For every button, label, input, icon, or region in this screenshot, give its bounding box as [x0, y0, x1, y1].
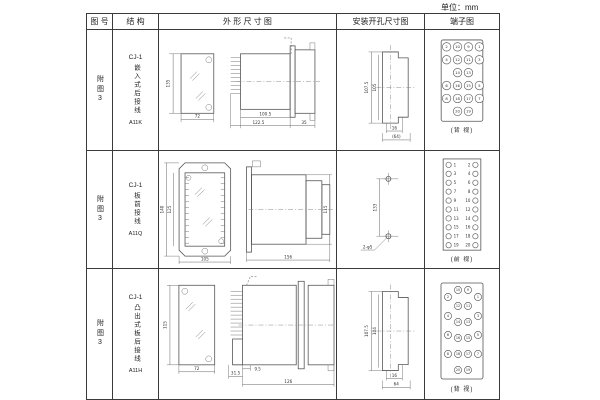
- dim-cutout-inner-row1: 105: [372, 83, 377, 91]
- dim-slot-width-row1: 16: [392, 125, 398, 130]
- svg-text:16: 16: [465, 225, 471, 230]
- mount-type-row1: 嵌入式后接线: [131, 64, 141, 115]
- dim-front-height-row3: 115: [162, 321, 167, 329]
- terminal-cell-row2: 1234567891011121314151617181920 (前 视): [425, 151, 499, 269]
- mirror-hatch-icon: [186, 302, 195, 311]
- latch-icon: [247, 276, 257, 285]
- dim-length-row2: 156: [284, 254, 292, 259]
- svg-text:10: 10: [465, 198, 471, 203]
- view-label-row1: (背 视): [451, 126, 473, 134]
- outline-drawing-row2: 140 125 105 156 115: [159, 151, 336, 268]
- svg-text:16: 16: [456, 336, 460, 340]
- mounting-drawing-row1: 107.5 105 16 (64): [337, 30, 424, 150]
- svg-text:15: 15: [466, 84, 471, 88]
- svg-text:5: 5: [454, 180, 457, 185]
- terminal-cell-row1: 2109141211314136161558181772019 (背 视): [425, 30, 499, 151]
- svg-text:15: 15: [466, 336, 470, 340]
- model-row3: CJ-1: [129, 294, 143, 301]
- svg-text:14: 14: [465, 216, 471, 221]
- header-structure: 结 构: [113, 14, 159, 30]
- dim-front-height-row1: 135: [166, 79, 171, 87]
- svg-text:17: 17: [466, 97, 471, 101]
- terminal-grid-back-staggered: 2468101214161820911131517191357: [444, 286, 481, 373]
- svg-text:1: 1: [477, 295, 479, 299]
- unit-label: 单位：mm: [441, 2, 478, 13]
- mirror-hatch-icon: [195, 188, 204, 197]
- svg-text:17: 17: [454, 234, 460, 239]
- view-label-row3: (背 视): [451, 385, 474, 393]
- dim-width-row2: 105: [201, 256, 209, 261]
- svg-text:18: 18: [456, 352, 460, 356]
- terminal-pins-icon: [231, 58, 241, 94]
- svg-text:19: 19: [454, 243, 460, 248]
- header-fig-no: 图 号: [87, 14, 113, 30]
- dim-cutout-outer-row3: 107.5: [364, 325, 369, 337]
- svg-text:10: 10: [455, 45, 460, 49]
- svg-text:10: 10: [456, 288, 460, 292]
- dim-cutout-outer-row1: 107.5: [364, 81, 369, 93]
- fig-no-row1: 附图3: [95, 75, 105, 105]
- dim-body-length-row1: 100.5: [259, 112, 271, 117]
- outline-cell-row3: 115 72 9.5 31.5 126: [159, 269, 337, 399]
- svg-text:11: 11: [466, 304, 470, 308]
- dim-gap-row3: 9.5: [254, 367, 261, 372]
- mount-type-row2: 板前接线: [131, 192, 141, 226]
- terminal-grid-back: 2109141211314136161558181772019: [442, 43, 483, 116]
- structure-cell-row1: CJ-1 嵌入式后接线 A11K: [113, 30, 159, 151]
- svg-text:3: 3: [477, 314, 479, 318]
- dim-total-length-row1: 122.5: [252, 120, 264, 125]
- model-row2: CJ-1: [129, 182, 143, 189]
- dim-front-width-row3: 72: [194, 366, 200, 371]
- dim-cutout-width-row1: (64): [392, 134, 401, 139]
- svg-text:19: 19: [466, 110, 471, 114]
- fig-no-cell-row1: 附图3: [87, 30, 113, 151]
- dim-outer-height-row2: 140: [160, 205, 165, 213]
- model-code-row1: A11K: [129, 120, 142, 126]
- mirror-hatch-icon: [196, 91, 205, 100]
- svg-text:19: 19: [466, 368, 470, 372]
- svg-text:12: 12: [455, 58, 460, 62]
- mounting-cell-row2: 133 2-φ5: [337, 151, 425, 269]
- mount-type-row3: 凸出式板后接线: [131, 304, 141, 364]
- svg-text:14: 14: [456, 320, 460, 324]
- svg-text:20: 20: [465, 243, 471, 248]
- outline-drawing-row1: 135 72 100.5 122.5 35: [159, 30, 336, 150]
- svg-text:20: 20: [456, 368, 460, 372]
- mounting-cell-row1: 107.5 105 16 (64): [337, 30, 425, 151]
- terminal-drawing-row2: 1234567891011121314151617181920 (前 视): [425, 151, 499, 268]
- svg-text:5: 5: [477, 333, 479, 337]
- svg-text:16: 16: [455, 84, 460, 88]
- svg-text:2: 2: [468, 162, 471, 167]
- svg-text:13: 13: [466, 320, 470, 324]
- dim-slot-width-row3: 16: [392, 373, 398, 378]
- fig-no-row3: 附图3: [95, 319, 105, 349]
- model-code-row3: A11H: [129, 368, 142, 374]
- svg-text:13: 13: [454, 216, 460, 221]
- svg-text:9: 9: [467, 288, 469, 292]
- terminal-pins-icon: [231, 291, 243, 335]
- dim-cutout-inner-row3: 104: [372, 327, 377, 335]
- hole-spec-row2: 2-φ5: [363, 244, 373, 249]
- fig-no-cell-row2: 附图3: [87, 151, 113, 269]
- header-mounting-holes: 安装开孔尺寸图: [337, 14, 425, 30]
- terminal-drawing-row3: 2468101214161820911131517191357 (背 视): [425, 269, 499, 399]
- svg-text:18: 18: [455, 97, 460, 101]
- dim-hole-distance-row2: 133: [373, 203, 378, 211]
- outline-cell-row2: 140 125 105 156 115: [159, 151, 337, 269]
- terminal-strip-icon: [221, 178, 225, 243]
- svg-text:3: 3: [454, 171, 457, 176]
- dim-side-height-row2: 115: [323, 205, 328, 213]
- terminal-drawing-row1: 2109141211314136161558181772019 (背 视): [425, 30, 499, 150]
- terminal-strip-front: 1234567891011121314151617181920: [446, 162, 478, 248]
- dim-cutout-width-row3: 64: [394, 382, 400, 387]
- view-label-row2: (前 视): [451, 255, 473, 263]
- mounting-cell-row3: 107.5 104 16 64: [337, 269, 425, 399]
- svg-text:11: 11: [454, 207, 460, 212]
- svg-text:9: 9: [454, 198, 457, 203]
- svg-text:15: 15: [454, 225, 460, 230]
- dim-length-row3: 126: [284, 379, 292, 384]
- mirror-hatch-icon: [203, 217, 212, 226]
- mounting-drawing-row3: 107.5 104 16 64: [337, 269, 424, 399]
- svg-text:4: 4: [468, 171, 471, 176]
- header-outline-dims: 外 形 尺 寸 图: [159, 14, 337, 30]
- outline-drawing-row3: 115 72 9.5 31.5 126: [159, 269, 336, 399]
- svg-text:12: 12: [456, 304, 460, 308]
- structure-cell-row3: CJ-1 凸出式板后接线 A11H: [113, 269, 159, 399]
- structure-cell-row2: CJ-1 板前接线 A11Q: [113, 151, 159, 269]
- dim-inner-height-row2: 125: [167, 205, 172, 213]
- svg-text:20: 20: [455, 110, 460, 114]
- dim-pins-row3: 31.5: [231, 371, 241, 376]
- svg-text:18: 18: [465, 234, 471, 239]
- svg-text:4: 4: [447, 314, 449, 318]
- model-code-row2: A11Q: [129, 231, 143, 237]
- spec-table: 图 号 结 构 外 形 尺 寸 图 安装开孔尺寸图 端子图 附图3 CJ-1 嵌…: [86, 13, 500, 400]
- svg-text:6: 6: [447, 333, 449, 337]
- mirror-hatch-icon: [190, 72, 199, 81]
- svg-text:8: 8: [447, 352, 449, 356]
- svg-text:11: 11: [466, 58, 471, 62]
- svg-text:17: 17: [466, 352, 470, 356]
- terminal-strip-icon: [185, 178, 189, 243]
- spec-sheet-page: 单位：mm 图 号 结 构 外 形 尺 寸 图 安装开孔尺寸图 端子图 附图3 …: [0, 0, 600, 400]
- header-terminal-diagram: 端子图: [425, 14, 499, 30]
- svg-text:12: 12: [465, 207, 471, 212]
- svg-text:1: 1: [454, 162, 457, 167]
- model-row1: CJ-1: [129, 54, 143, 61]
- svg-text:2: 2: [447, 295, 449, 299]
- outline-cell-row1: 135 72 100.5 122.5 35: [159, 30, 337, 151]
- dim-flange-depth-row1: 35: [301, 120, 307, 125]
- svg-text:8: 8: [468, 189, 471, 194]
- terminal-cell-row3: 2468101214161820911131517191357 (背 视): [425, 269, 499, 399]
- mirror-hatch-icon: [196, 330, 205, 339]
- mounting-drawing-row2: 133 2-φ5: [337, 151, 424, 268]
- dim-front-width-row1: 72: [195, 114, 201, 119]
- fig-no-row2: 附图3: [95, 195, 105, 225]
- svg-text:6: 6: [468, 180, 471, 185]
- fig-no-cell-row3: 附图3: [87, 269, 113, 399]
- svg-text:7: 7: [477, 352, 479, 356]
- svg-text:14: 14: [455, 71, 460, 75]
- svg-text:7: 7: [454, 189, 457, 194]
- svg-text:13: 13: [466, 71, 471, 75]
